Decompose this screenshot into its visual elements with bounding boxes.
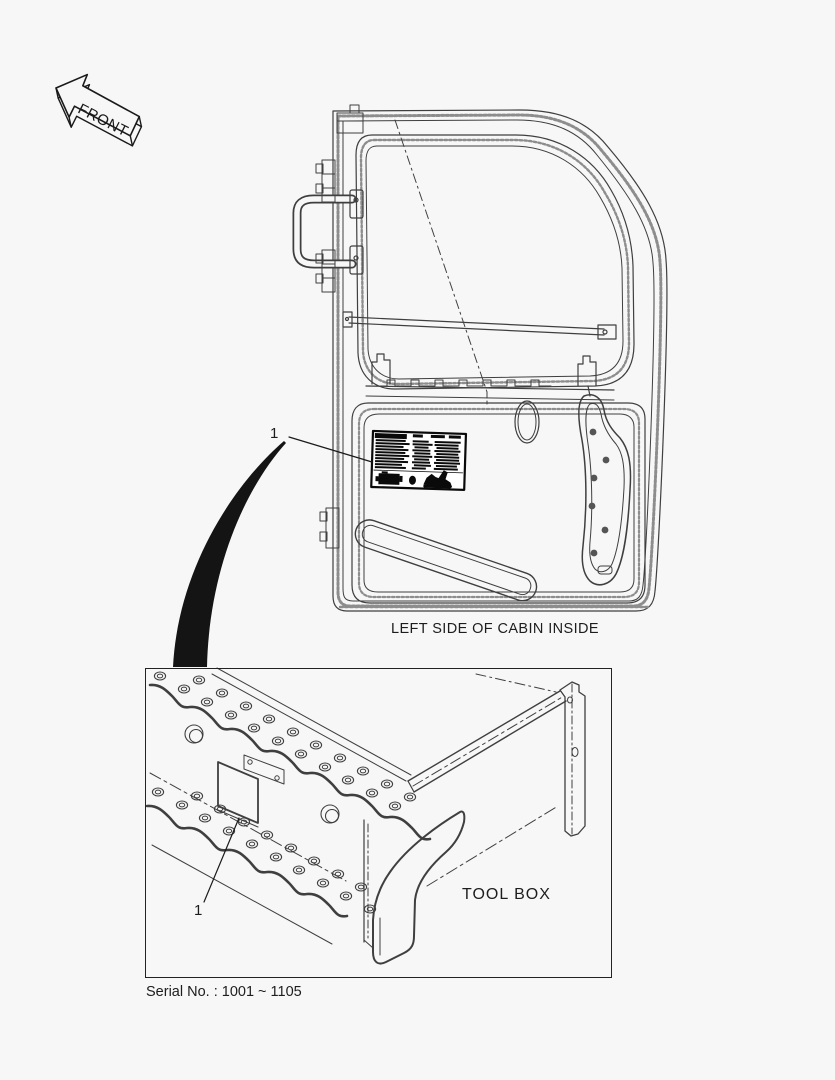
detail-callout-number: 1: [194, 902, 202, 919]
armrest: [352, 516, 541, 604]
grab-handle: [297, 190, 363, 274]
door-hinges: [316, 160, 339, 548]
window-sill: [366, 354, 614, 400]
panel-oval-hole: [515, 401, 539, 443]
specification-decal-icon: [371, 431, 466, 490]
door-latch-trim: [579, 386, 631, 585]
serial-number-note: Serial No. : 1001 ~ 1105: [146, 984, 302, 1000]
detail-swoosh-arrow: [173, 441, 286, 667]
detail-view-frame: [145, 668, 612, 978]
cabin-door-drawing: [289, 105, 667, 611]
parts-diagram-page: FRONT: [0, 0, 835, 1080]
toolbox-label: TOOL BOX: [462, 886, 551, 904]
door-view-caption: LEFT SIDE OF CABIN INSIDE: [391, 621, 599, 637]
door-callout-number: 1: [270, 425, 278, 442]
window-stay-rod: [343, 312, 616, 339]
corner-bracket: [337, 105, 363, 133]
front-arrow-icon: FRONT: [46, 67, 151, 147]
